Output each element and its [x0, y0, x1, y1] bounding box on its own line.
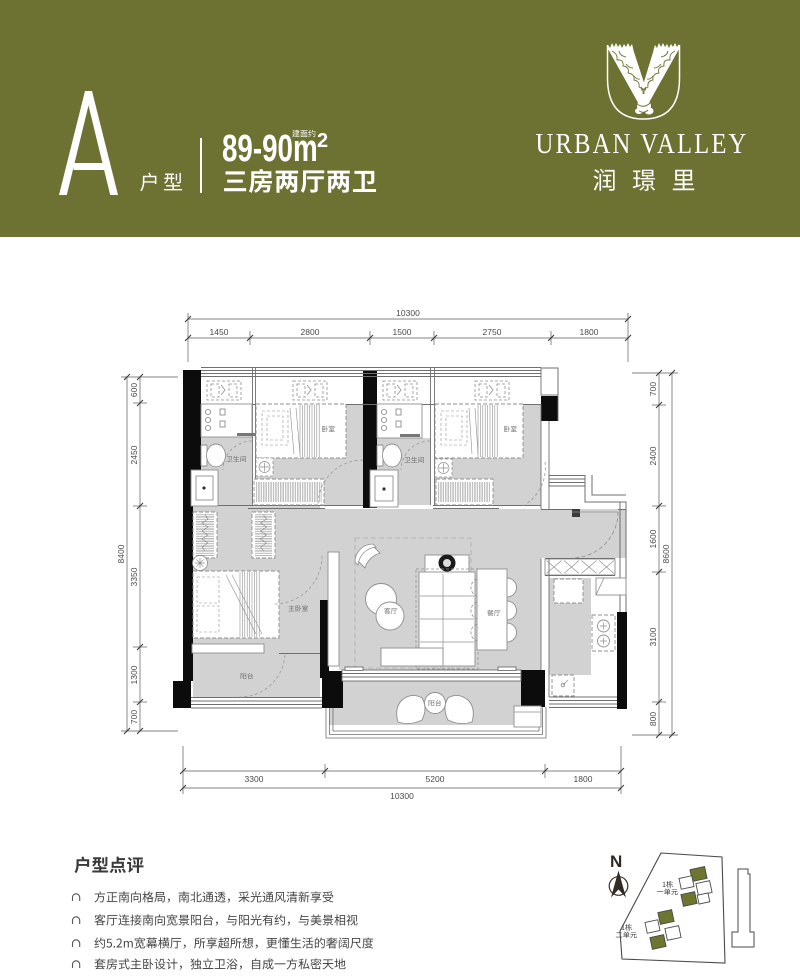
svg-text:10300: 10300: [390, 791, 414, 801]
svg-text:1450: 1450: [210, 327, 229, 337]
svg-text:700: 700: [129, 710, 139, 724]
svg-text:8400: 8400: [116, 544, 126, 563]
svg-text:1800: 1800: [580, 327, 599, 337]
svg-text:8600: 8600: [661, 544, 671, 563]
svg-text:2400: 2400: [648, 446, 658, 465]
svg-text:2750: 2750: [483, 327, 502, 337]
svg-text:N: N: [610, 852, 622, 871]
svg-text:1300: 1300: [129, 665, 139, 684]
svg-text:2450: 2450: [129, 445, 139, 464]
svg-text:600: 600: [129, 383, 139, 397]
svg-text:800: 800: [648, 712, 658, 726]
svg-text:700: 700: [648, 382, 658, 396]
svg-text:3100: 3100: [648, 627, 658, 646]
svg-text:10300: 10300: [396, 308, 420, 318]
svg-text:3350: 3350: [129, 567, 139, 586]
svg-text:5200: 5200: [426, 774, 445, 784]
svg-text:1800: 1800: [574, 774, 593, 784]
svg-text:1500: 1500: [393, 327, 412, 337]
svg-text:2800: 2800: [301, 327, 320, 337]
svg-text:1600: 1600: [648, 529, 658, 548]
svg-text:3300: 3300: [245, 774, 264, 784]
